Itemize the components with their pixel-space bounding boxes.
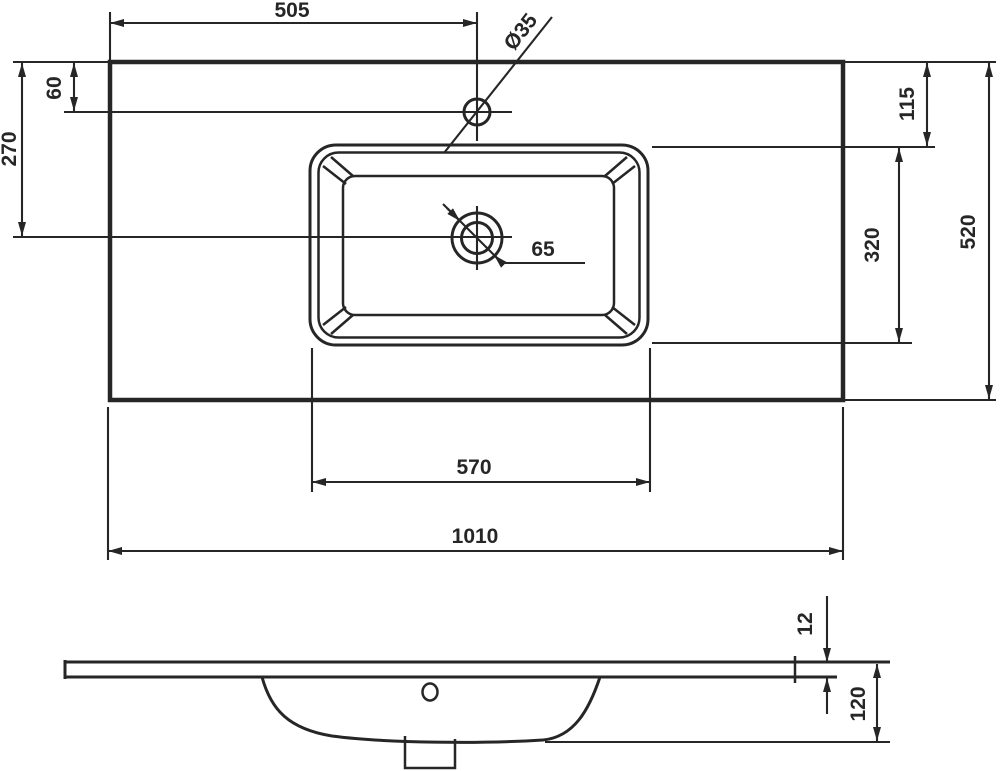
dim-label-115: 115 <box>896 87 919 121</box>
dim-basin-opening-width: 570 <box>312 456 650 482</box>
dim-label-505: 505 <box>274 0 309 22</box>
dim-label-520: 520 <box>957 214 980 249</box>
side-view: 12 120 <box>65 596 890 768</box>
dim-drain-diameter: 65 <box>443 204 585 264</box>
dim-label-270: 270 <box>0 131 21 166</box>
dim-countertop-thickness: 12 <box>794 596 827 714</box>
dim-label-570: 570 <box>456 456 491 479</box>
dim-total-depth: 520 <box>957 63 989 399</box>
countertop-section <box>65 660 890 679</box>
extension-lines <box>13 12 996 560</box>
dim-basin-offset-from-back: 115 <box>896 63 927 146</box>
top-view: 505 Ø35 60 270 115 320 520 <box>0 0 996 560</box>
dim-faucet-offset-from-back: 60 <box>43 63 74 111</box>
dim-total-width: 1010 <box>108 525 843 551</box>
dim-label-120: 120 <box>847 686 870 721</box>
bowl-profile <box>262 677 600 742</box>
technical-drawing-canvas: 505 Ø35 60 270 115 320 520 <box>0 0 1000 771</box>
dim-drain-offset-from-back: 270 <box>0 63 22 236</box>
dim-faucet-hole-diameter: Ø35 <box>444 9 552 153</box>
dim-label-1010: 1010 <box>452 525 499 548</box>
dim-basin-opening-depth: 320 <box>861 148 899 342</box>
dim-faucet-offset-from-left: 505 <box>110 0 477 23</box>
basin-corner-chamfers <box>323 157 635 334</box>
dim-label-12: 12 <box>794 612 817 635</box>
dim-label-65: 65 <box>531 238 555 261</box>
dim-label-o35: Ø35 <box>500 9 543 55</box>
basin <box>310 145 648 345</box>
washbasin-technical-drawing: 505 Ø35 60 270 115 320 520 <box>0 0 1000 771</box>
basin-inner-rim <box>319 153 640 338</box>
dim-total-height: 120 <box>847 664 877 741</box>
dim-label-320: 320 <box>861 227 884 262</box>
overflow-hole <box>423 684 438 701</box>
faucet-leader-line <box>444 17 552 153</box>
basin-bowl-opening <box>343 176 614 315</box>
dim-label-60: 60 <box>43 76 66 99</box>
